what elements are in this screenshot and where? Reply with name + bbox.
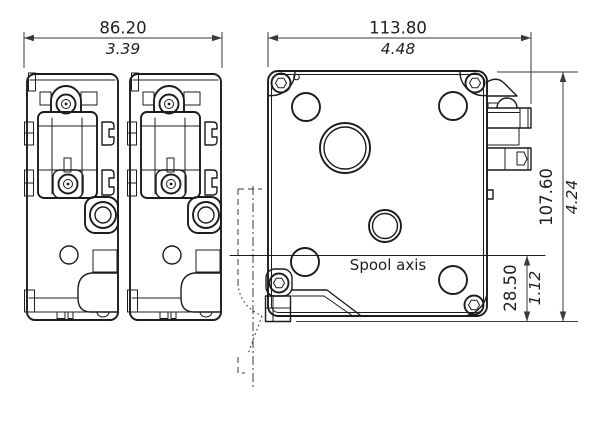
dimension-front-view-width: 113.80 4.48 xyxy=(268,19,531,105)
corner-screw-top-right xyxy=(466,74,485,93)
side-view-left xyxy=(25,73,119,320)
dimension-spool-axis-offset: 28.50 1.12 xyxy=(501,256,544,322)
spool-axis-label: Spool axis xyxy=(350,256,427,274)
corner-screw-top-left xyxy=(272,74,291,93)
dimension-side-views-width: 86.20 3.39 xyxy=(24,19,222,69)
side-views-width-mm-label: 86.20 xyxy=(99,19,146,38)
overall-height-inch-label: 4.24 xyxy=(563,180,581,215)
mounting-hole-top-left xyxy=(292,93,320,121)
overall-height-mm-label: 107.60 xyxy=(537,168,556,226)
phantom-outline xyxy=(238,186,262,388)
mounting-hole-bottom-right xyxy=(439,266,467,294)
mounting-hole-top-right xyxy=(439,92,467,120)
mounting-hole-bottom-left xyxy=(291,248,319,276)
side-views-width-inch-label: 3.39 xyxy=(106,40,141,58)
plate-outline xyxy=(268,71,487,316)
front-view xyxy=(266,71,532,322)
engineering-drawing: Spool axis 86.20 3.39 113.80 4.48 107.60… xyxy=(0,0,600,432)
right-mounting-tabs xyxy=(487,79,531,199)
front-view-width-inch-label: 4.48 xyxy=(381,40,416,58)
engineering-drawing-page: Spool axis 86.20 3.39 113.80 4.48 107.60… xyxy=(0,0,600,432)
front-view-width-mm-label: 113.80 xyxy=(369,19,427,38)
spool-axis-offset-inch-label: 1.12 xyxy=(526,271,544,306)
corner-screw-bottom-left xyxy=(270,274,289,293)
large-bearing-bore xyxy=(320,123,370,173)
small-bearing-bore xyxy=(369,210,401,242)
spool-axis-offset-mm-label: 28.50 xyxy=(501,264,520,311)
corner-screw-bottom-right xyxy=(465,296,484,315)
side-view-right xyxy=(128,73,222,320)
